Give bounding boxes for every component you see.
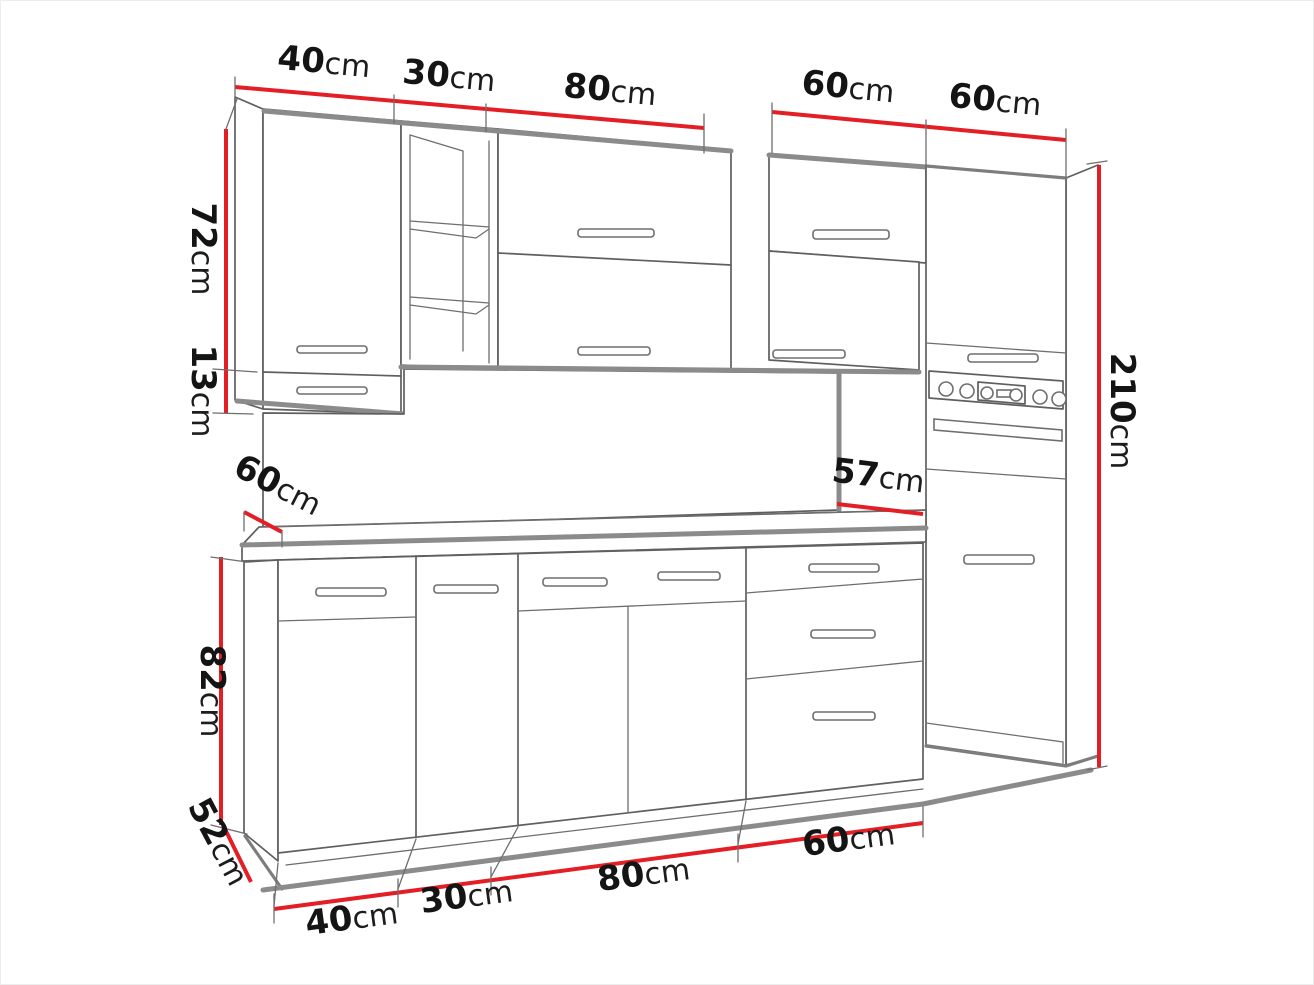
base-60-drawer-handle-1 [809, 564, 879, 572]
tall-cabinet-upper-handle [968, 354, 1038, 362]
dim-label-top-80: 80cm [562, 66, 658, 114]
tall-cabinet-lower-handle [964, 555, 1034, 564]
diagram-canvas: 40cm 30cm 80cm 60cm 60cm 72cm 13cm 60cm … [1, 1, 1314, 985]
wall-cabinet-80-front [498, 129, 731, 372]
dim-label-bottom-80: 80cm [595, 848, 693, 900]
wall-cabinet-60-over-cooker [769, 154, 926, 370]
tall-cabinet-side [1066, 165, 1098, 765]
wall-cabinet-60-front [769, 154, 926, 263]
dim-label-bottom-60: 60cm [800, 813, 898, 865]
dim-label-left-72: 72cm [183, 202, 223, 295]
oven-knob-2 [960, 384, 974, 398]
wall-cabinet-40-front [263, 109, 401, 414]
tall-oven-cabinet-60 [926, 165, 1098, 766]
open-shelf-unit-30 [401, 121, 498, 370]
base-row-side [244, 560, 278, 861]
base-30-door-handle [434, 585, 498, 593]
wall-cabinet-40-tall [235, 97, 404, 414]
wall-cabinet-40-side [235, 97, 263, 409]
kitchen-dimension-diagram: 40cm 30cm 80cm 60cm 60cm 72cm 13cm 60cm … [0, 0, 1314, 985]
wall-cabinet-80-lower-handle [578, 347, 650, 355]
base-60-drawer-handle-2 [811, 630, 875, 638]
base-60-drawer-handle-3 [813, 712, 875, 720]
oven-display-window [997, 390, 1011, 397]
oven-knob-1 [939, 382, 953, 396]
base-40-drawer-handle [316, 588, 386, 596]
dim-label-top-60a: 60cm [800, 63, 896, 112]
oven-knob-3 [1033, 390, 1047, 404]
wall-cabinet-40-lower-handle [297, 387, 367, 394]
dim-label-left-13: 13cm [183, 344, 223, 437]
dim-label-right-210: 210cm [1102, 353, 1142, 470]
oven-display-knob-right [1010, 389, 1022, 401]
base-80-drawer-handle-left [543, 578, 607, 586]
dim-label-bottom-30: 30cm [418, 870, 516, 922]
wall-cabinet-40-door-handle [297, 346, 367, 353]
dim-label-splash-57: 57cm [830, 451, 927, 502]
base-80-drawer-handle-right [658, 572, 720, 580]
wall-cabinet-60-handle [813, 230, 889, 239]
wall-cabinet-80-upper-handle [578, 229, 654, 237]
oven-knob-4 [1052, 392, 1066, 406]
dim-label-top-30: 30cm [401, 52, 497, 100]
tall-cabinet-front [926, 166, 1066, 765]
hood-cabinet-handle [773, 350, 845, 358]
oven-display-knob-left [981, 387, 993, 399]
wall-cabinet-80 [498, 129, 731, 372]
dim-label-top-60b: 60cm [947, 76, 1043, 125]
dim-label-left-82: 82cm [192, 644, 232, 737]
dim-label-top-40: 40cm [276, 38, 372, 86]
shelf-unit-frame [401, 121, 498, 370]
